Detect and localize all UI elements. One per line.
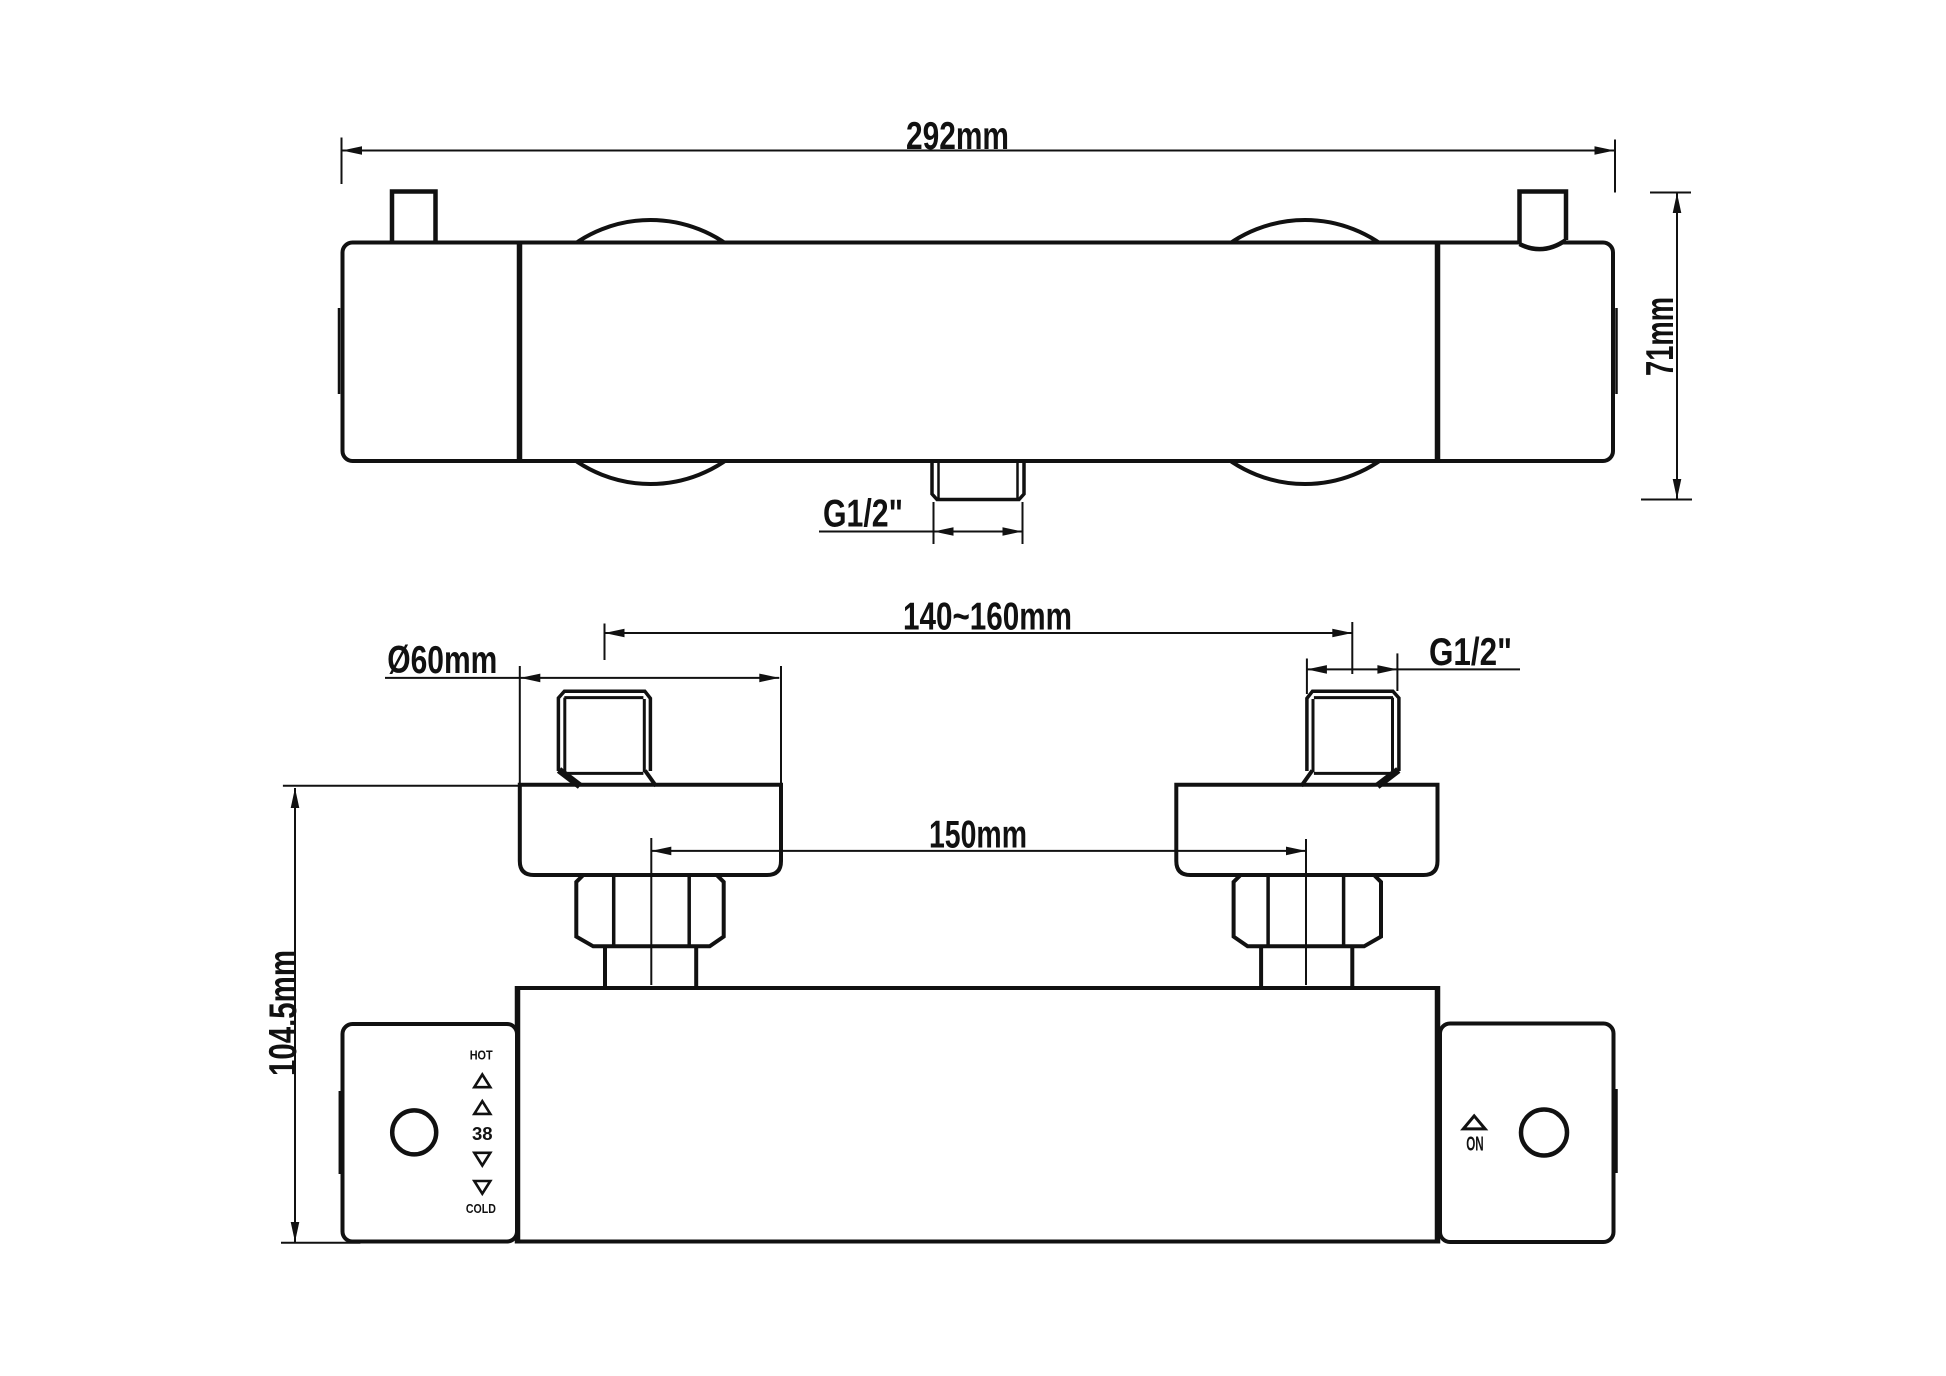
svg-text:104.5mm: 104.5mm	[262, 950, 305, 1076]
svg-text:71mm: 71mm	[1639, 297, 1682, 376]
svg-text:292mm: 292mm	[906, 115, 1009, 158]
svg-text:G1/2": G1/2"	[1429, 631, 1512, 674]
svg-text:150mm: 150mm	[929, 814, 1027, 857]
svg-text:140~160mm: 140~160mm	[903, 596, 1072, 639]
svg-text:Ø60mm: Ø60mm	[387, 639, 497, 682]
svg-text:G1/2": G1/2"	[823, 493, 903, 536]
svg-text:COLD: COLD	[466, 1202, 496, 1216]
svg-text:HOT: HOT	[470, 1049, 493, 1063]
svg-text:ON: ON	[1466, 1134, 1484, 1156]
svg-text:38: 38	[472, 1123, 493, 1144]
